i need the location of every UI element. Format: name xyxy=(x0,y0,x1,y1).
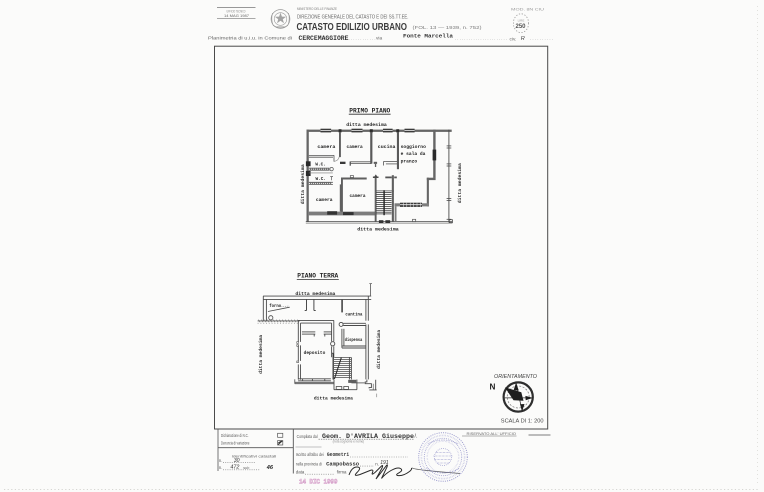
svg-text:ditta medesima: ditta medesima xyxy=(300,164,306,204)
svg-text:e sala da: e sala da xyxy=(401,151,426,157)
svg-text:cucina: cucina xyxy=(378,144,396,150)
svg-text:ORIENTAMENTO: ORIENTAMENTO xyxy=(494,374,537,380)
svg-text:PRIMO PIANO: PRIMO PIANO xyxy=(349,107,390,114)
svg-text:. . . . . . . . . .: . . . . . . . . . . xyxy=(530,35,553,40)
svg-text:Planimetria di u.i.u. in Comun: Planimetria di u.i.u. in Comune di xyxy=(208,36,292,42)
svg-text:firma: firma xyxy=(337,470,347,475)
svg-text:ditta medesima: ditta medesima xyxy=(346,122,387,128)
svg-text:MINISTERO DELLE FINANZE: MINISTERO DELLE FINANZE xyxy=(297,7,337,11)
svg-text:nella provincia di: nella provincia di xyxy=(296,461,322,466)
svg-text:R: R xyxy=(521,36,525,42)
svg-text:deposito: deposito xyxy=(304,350,326,356)
svg-text:(FOL. 13 — 1939, n. 752): (FOL. 13 — 1939, n. 752) xyxy=(413,25,483,30)
svg-text:W.C.: W.C. xyxy=(315,162,326,167)
svg-text:CERCEMAGGIORE: CERCEMAGGIORE xyxy=(299,35,349,42)
svg-text:(nota cognome e nome): (nota cognome e nome) xyxy=(333,439,365,443)
svg-text:ditta medesima: ditta medesima xyxy=(376,330,382,369)
svg-text:civ.: civ. xyxy=(510,37,517,43)
svg-text:forno: forno xyxy=(269,304,281,309)
svg-text:Campobasso: Campobasso xyxy=(326,460,360,467)
svg-text:n.: n. xyxy=(375,461,379,466)
svg-text:Iscritto all'albo dei: Iscritto all'albo dei xyxy=(296,452,324,457)
svg-text:Fonte Marcella: Fonte Marcella xyxy=(403,32,453,39)
svg-text:W.C.: W.C. xyxy=(316,177,327,182)
svg-text:pranzo: pranzo xyxy=(401,159,418,164)
svg-text:ditta medesima: ditta medesima xyxy=(457,163,463,203)
svg-text:dispensa: dispensa xyxy=(345,338,363,343)
svg-text:sub: sub xyxy=(243,466,249,470)
svg-text:camera: camera xyxy=(350,194,366,199)
svg-text:RISERVATO ALL' UFFICIO: RISERVATO ALL' UFFICIO xyxy=(467,431,517,436)
svg-text:camera: camera xyxy=(317,145,335,150)
svg-text:PIANO TERRA: PIANO TERRA xyxy=(297,273,338,280)
svg-text:n.: n. xyxy=(219,465,223,470)
svg-text:ditta medesima: ditta medesima xyxy=(314,396,353,402)
svg-text:cantina: cantina xyxy=(345,313,362,318)
svg-text:SCALA DI 1: 200: SCALA DI 1: 200 xyxy=(501,419,544,425)
svg-text:camera: camera xyxy=(316,198,333,203)
svg-text:14 DIC 1999: 14 DIC 1999 xyxy=(299,478,338,485)
svg-text:Dichiarazione di N.C.: Dichiarazione di N.C. xyxy=(221,433,249,438)
svg-text:Compilata dal: Compilata dal xyxy=(297,434,318,439)
svg-text:MOD. 8N CIU: MOD. 8N CIU xyxy=(511,7,544,12)
svg-text:14 MAG 1987: 14 MAG 1987 xyxy=(224,14,249,18)
svg-text:ditta medesima: ditta medesima xyxy=(258,335,264,374)
svg-text:CATASTO EDILIZIO URBANO: CATASTO EDILIZIO URBANO xyxy=(297,22,408,33)
svg-text:data: data xyxy=(296,470,305,475)
svg-text:Geometri: Geometri xyxy=(327,452,349,458)
svg-text:. . . . . . . . . . . . . . .: . . . . . . . . . . . . . . . . . . . . … xyxy=(455,35,507,40)
svg-text:soggiorno: soggiorno xyxy=(401,144,426,150)
svg-text:46: 46 xyxy=(266,465,274,471)
svg-text:camera: camera xyxy=(347,145,363,150)
svg-text:Denuncia di variazione: Denuncia di variazione xyxy=(221,441,250,446)
svg-text:/.: /. xyxy=(415,434,419,440)
svg-text:DIREZIONE GENERALE DEL CATASTO: DIREZIONE GENERALE DEL CATASTO E DEI SS.… xyxy=(297,14,409,20)
svg-text:via: via xyxy=(376,35,382,41)
svg-text:ditta medesima: ditta medesima xyxy=(357,227,399,233)
svg-text:LIRE: LIRE xyxy=(518,18,525,22)
svg-text:N: N xyxy=(490,382,496,391)
svg-text:. . . . . . . . . . . .: . . . . . . . . . . . . xyxy=(349,36,376,41)
svg-text:250: 250 xyxy=(515,24,526,30)
svg-text:n.: n. xyxy=(219,458,223,463)
